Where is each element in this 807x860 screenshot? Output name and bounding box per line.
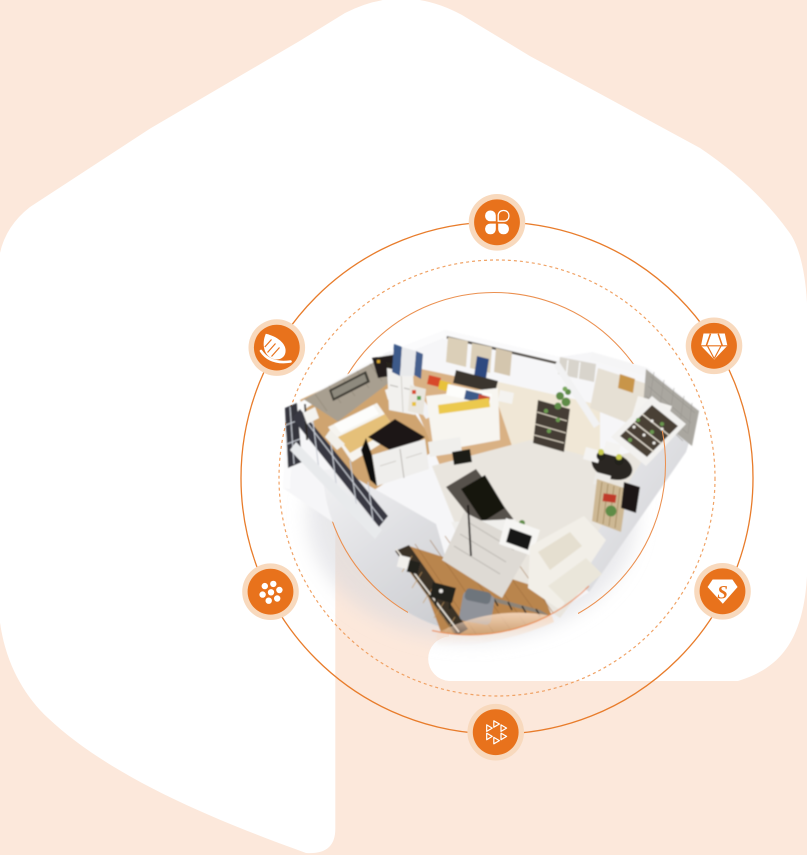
svg-text:S: S bbox=[717, 583, 728, 604]
